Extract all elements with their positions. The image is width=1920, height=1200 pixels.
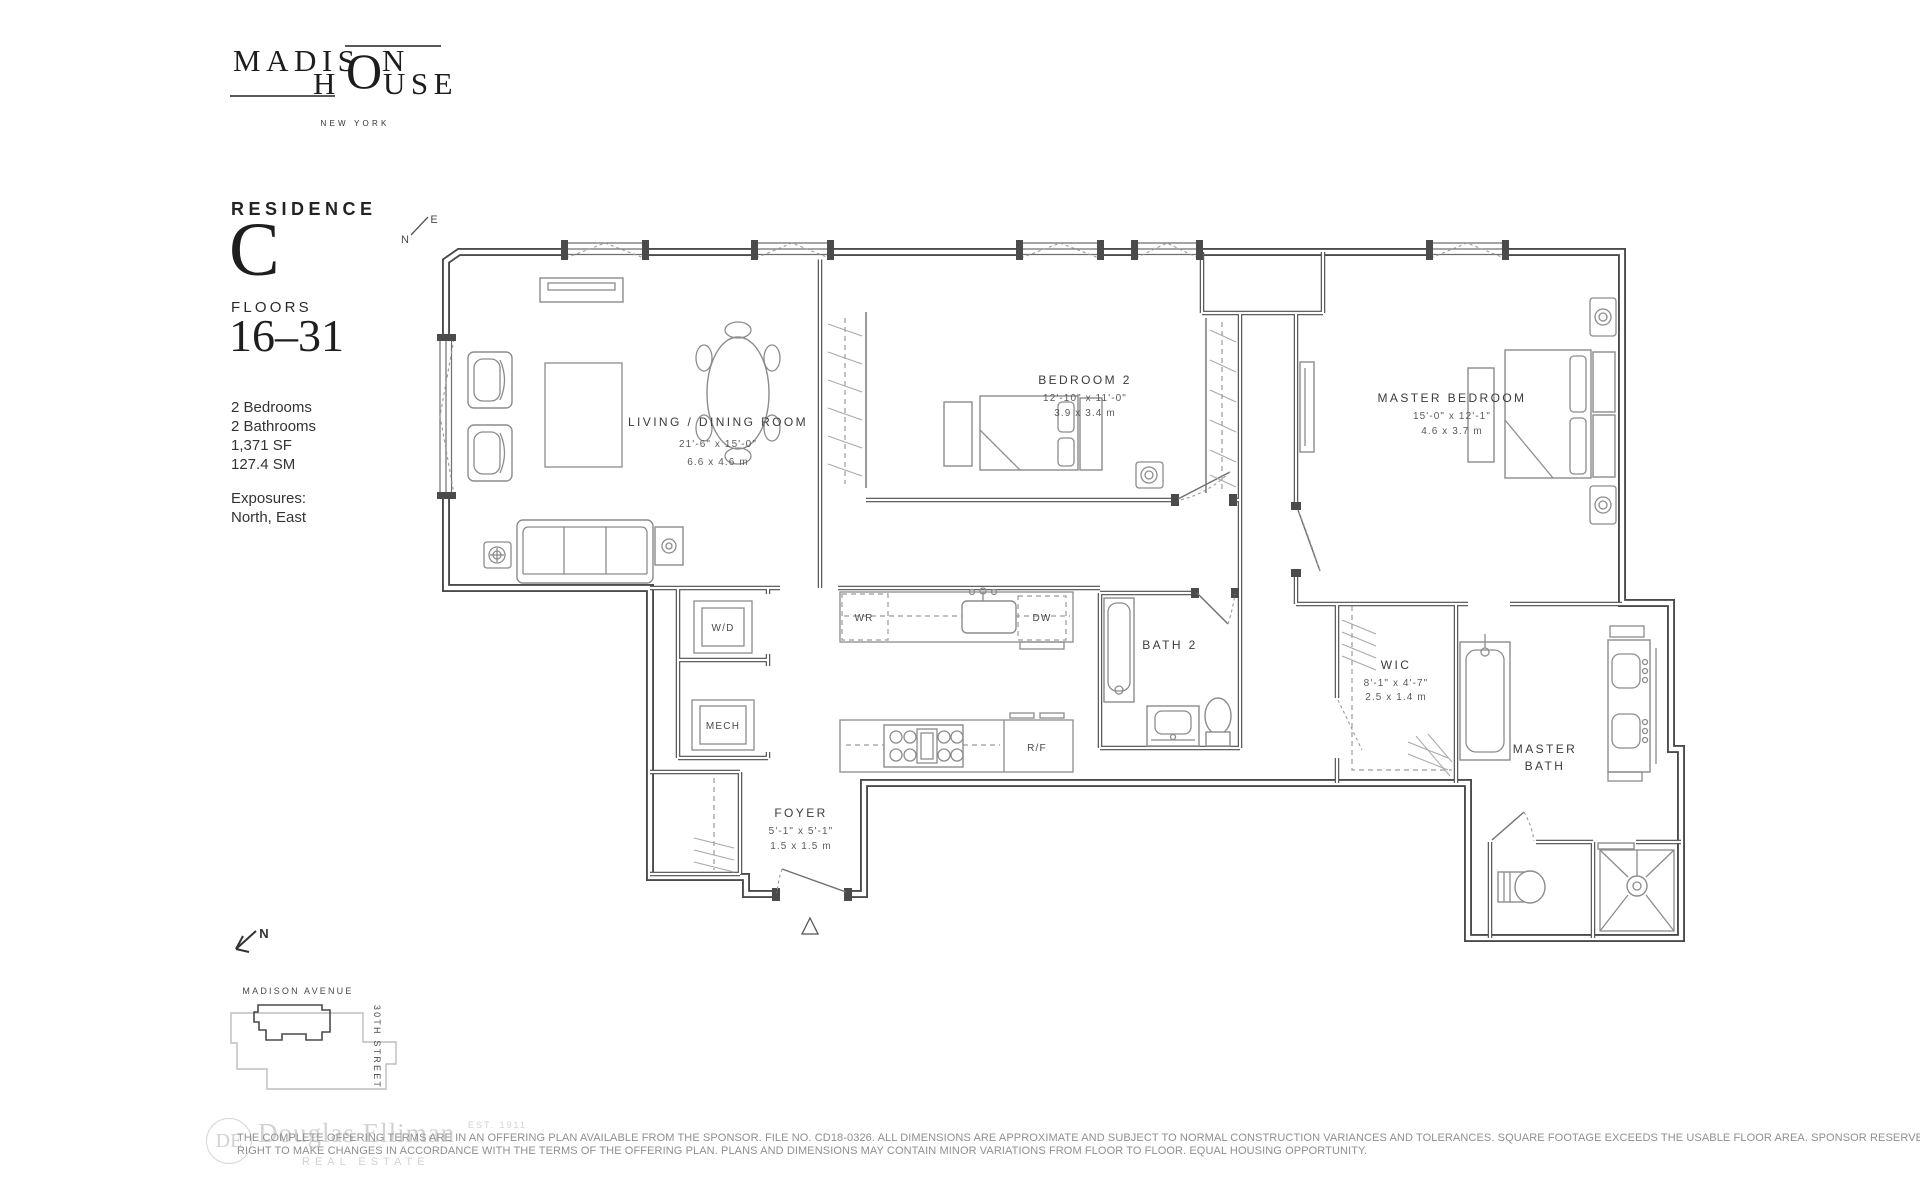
foyer-dims-imperial: 5'-1" x 5'-1" [769, 826, 834, 837]
bedroom2-label: BEDROOM 2 [1038, 373, 1132, 387]
master-bedroom-dims-metric: 4.6 x 3.7 m [1421, 426, 1483, 437]
living-dining-label: LIVING / DINING ROOM [628, 415, 808, 429]
floor-outlet-symbol [1136, 462, 1163, 488]
sofa [517, 520, 653, 583]
master-tub [1460, 634, 1510, 760]
site-key-map: N MADISON AVENUE 30TH STREET [231, 926, 396, 1089]
bench [944, 402, 972, 466]
wine-ref-label: WR [854, 613, 873, 624]
mech-label: MECH [706, 721, 740, 732]
window-bay-5 [1426, 240, 1509, 260]
plan-compass-north: N [401, 234, 409, 246]
armchair [468, 425, 512, 481]
foyer-dims-metric: 1.5 x 1.5 m [770, 841, 832, 852]
master-bedroom-label: MASTER BEDROOM [1378, 391, 1527, 405]
armchair [468, 352, 512, 408]
plan-compass-east: E [430, 214, 437, 226]
watermark-tagline: REAL ESTATE [302, 1156, 430, 1168]
toilet-room-door-leaf [1492, 812, 1524, 840]
plan-compass: N E [401, 214, 438, 246]
headboard-cabinet [1593, 415, 1615, 477]
floorplan-page: MADIS N O H USE NEW YORK RESIDENCE C FLO… [0, 0, 1920, 1200]
floor-outlet-symbol [484, 542, 511, 568]
wic-dims-imperial: 8'-1" x 4'-7" [1364, 678, 1429, 689]
island-handle [1040, 713, 1064, 718]
building-footprint-outline [231, 1013, 396, 1089]
headboard-cabinet [1593, 352, 1615, 412]
floor-outlet-symbol [1590, 486, 1616, 524]
wic-interior [1342, 606, 1452, 776]
bath2-fixtures [1104, 598, 1231, 746]
floor-plan: N E [0, 0, 1920, 1200]
refrigerator-label: R/F [1027, 743, 1047, 754]
wic-door-leaf [1338, 700, 1362, 750]
bedroom2-dims-imperial: 12'-10" x 11'-0" [1043, 393, 1127, 404]
master-bedroom-dims-imperial: 15'-0" x 12'-1" [1413, 411, 1491, 422]
toilet [1205, 698, 1231, 746]
vanity-sink [1147, 706, 1199, 746]
double-vanity [1608, 626, 1656, 781]
kitchen-sink [962, 588, 1016, 633]
north-arrow: N [236, 926, 269, 952]
entry-door-post-left [772, 888, 780, 901]
entry-door-post-right [844, 888, 852, 901]
dining-chair [764, 345, 780, 371]
madison-avenue-label: MADISON AVENUE [242, 986, 353, 996]
range-stove [884, 725, 963, 767]
disclaimer-line-2: RIGHT TO MAKE CHANGES IN ACCORDANCE WITH… [237, 1145, 1367, 1157]
living-dining-dims-metric: 6.6 x 4.6 m [687, 457, 749, 468]
window-bay-west [437, 334, 456, 499]
window-bay-4 [1131, 240, 1203, 260]
master-bath-label-line1: MASTER [1513, 742, 1577, 756]
floor-outlet-symbol [1590, 298, 1616, 336]
shower [1600, 850, 1674, 931]
bath2-label: BATH 2 [1142, 638, 1198, 652]
entry-marker-triangle [802, 918, 818, 934]
foyer-label: FOYER [774, 806, 827, 820]
disclaimer-line-1: THE COMPLETE OFFERING TERMS ARE IN AN OF… [237, 1132, 1920, 1144]
thirtieth-street-label: 30TH STREET [372, 1005, 382, 1089]
window-bay-1 [561, 240, 649, 260]
watermark-established: EST. 1911 [468, 1120, 527, 1130]
dishwasher-sill [1020, 642, 1064, 649]
living-room-furniture [468, 278, 780, 583]
shower-drain [1627, 876, 1647, 896]
island-handle [1010, 713, 1034, 718]
dishwasher-label: DW [1032, 613, 1051, 624]
bathtub [1104, 598, 1134, 702]
dining-chair [696, 345, 712, 371]
exterior-walls [446, 252, 1681, 938]
north-arrow-label: N [259, 926, 268, 941]
window-bay-2 [751, 240, 834, 260]
entry-door-leaf [782, 869, 846, 892]
wic-dims-metric: 2.5 x 1.4 m [1365, 692, 1427, 703]
dining-chair [725, 322, 751, 338]
master-bed [1505, 350, 1591, 478]
living-dining-dims-imperial: 21'-6" x 15'-0" [679, 439, 757, 450]
side-table-lamp [655, 527, 683, 565]
window-bay-3 [1016, 240, 1104, 260]
bedroom2-dims-metric: 3.9 x 3.4 m [1054, 408, 1116, 419]
water-closet-toilet [1498, 871, 1545, 903]
dresser [1300, 362, 1314, 452]
bath2-door-leaf [1197, 593, 1228, 624]
wic-label: WIC [1381, 658, 1412, 672]
shower-sill [1598, 843, 1634, 849]
master-bath-label-line2: BATH [1525, 759, 1566, 773]
residence-c-unit-outline [254, 1005, 330, 1040]
area-rug [545, 363, 622, 467]
washer-dryer-label: W/D [711, 623, 734, 634]
